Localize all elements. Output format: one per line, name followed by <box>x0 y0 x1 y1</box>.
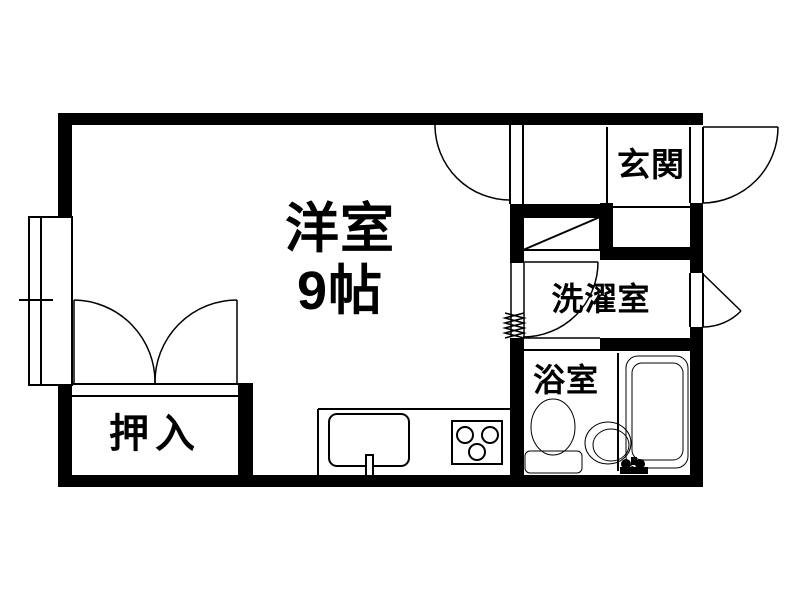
main-room-name: 洋室 <box>240 198 440 260</box>
door-swing-icon <box>74 300 155 383</box>
wall-partition-lower <box>510 338 524 475</box>
laundry-label: 洗濯室 <box>521 282 681 316</box>
bathroom-label: 浴室 <box>516 363 616 397</box>
toilet-tank <box>525 451 582 473</box>
door-swing-icon <box>703 311 741 327</box>
bathtub-inner <box>632 363 683 460</box>
sink-faucet <box>366 455 373 476</box>
floor-plan: 洋室 9帖 玄関 洗濯室 浴室 押入 <box>0 0 800 600</box>
wall-genkan-bottom <box>600 247 690 260</box>
wall-left-upper <box>58 113 72 217</box>
door-leaf <box>703 274 741 311</box>
main-room-label: 洋室 9帖 <box>240 198 440 322</box>
window <box>19 217 72 385</box>
wall-bottom <box>58 475 703 487</box>
wall-right-upper <box>690 203 703 273</box>
stove-burners-icon <box>457 427 473 443</box>
door-swing-icon <box>703 127 778 203</box>
door-swing-icon <box>435 125 510 200</box>
wall-left-lower <box>58 385 72 487</box>
shoe-cabinet-diagonal <box>523 217 600 250</box>
entrance-label: 玄関 <box>601 147 701 183</box>
wash-basin-inner <box>593 429 629 461</box>
shoe-cabinet <box>523 217 600 250</box>
wash-basin-icon <box>585 422 631 464</box>
wall-hall-top <box>510 204 607 217</box>
wall-laundry-bath <box>600 338 703 350</box>
wall-top <box>58 113 703 125</box>
wall-zigzag-symbol <box>505 313 524 338</box>
bathtub-icon <box>626 356 688 468</box>
stove-burners-icon <box>469 444 485 460</box>
bathroom <box>523 338 690 474</box>
toilet-icon <box>531 399 575 455</box>
stove-burners-icon <box>482 427 498 443</box>
closet-label: 押入 <box>75 412 235 456</box>
door-swing-icon <box>155 300 237 383</box>
main-room-size: 9帖 <box>240 260 440 322</box>
wall-closet-right <box>238 383 253 487</box>
closet <box>72 300 238 396</box>
main-room-door <box>435 125 523 204</box>
entrance-door <box>690 127 778 203</box>
kitchen <box>318 409 510 476</box>
laundry-exterior-door <box>690 273 741 327</box>
